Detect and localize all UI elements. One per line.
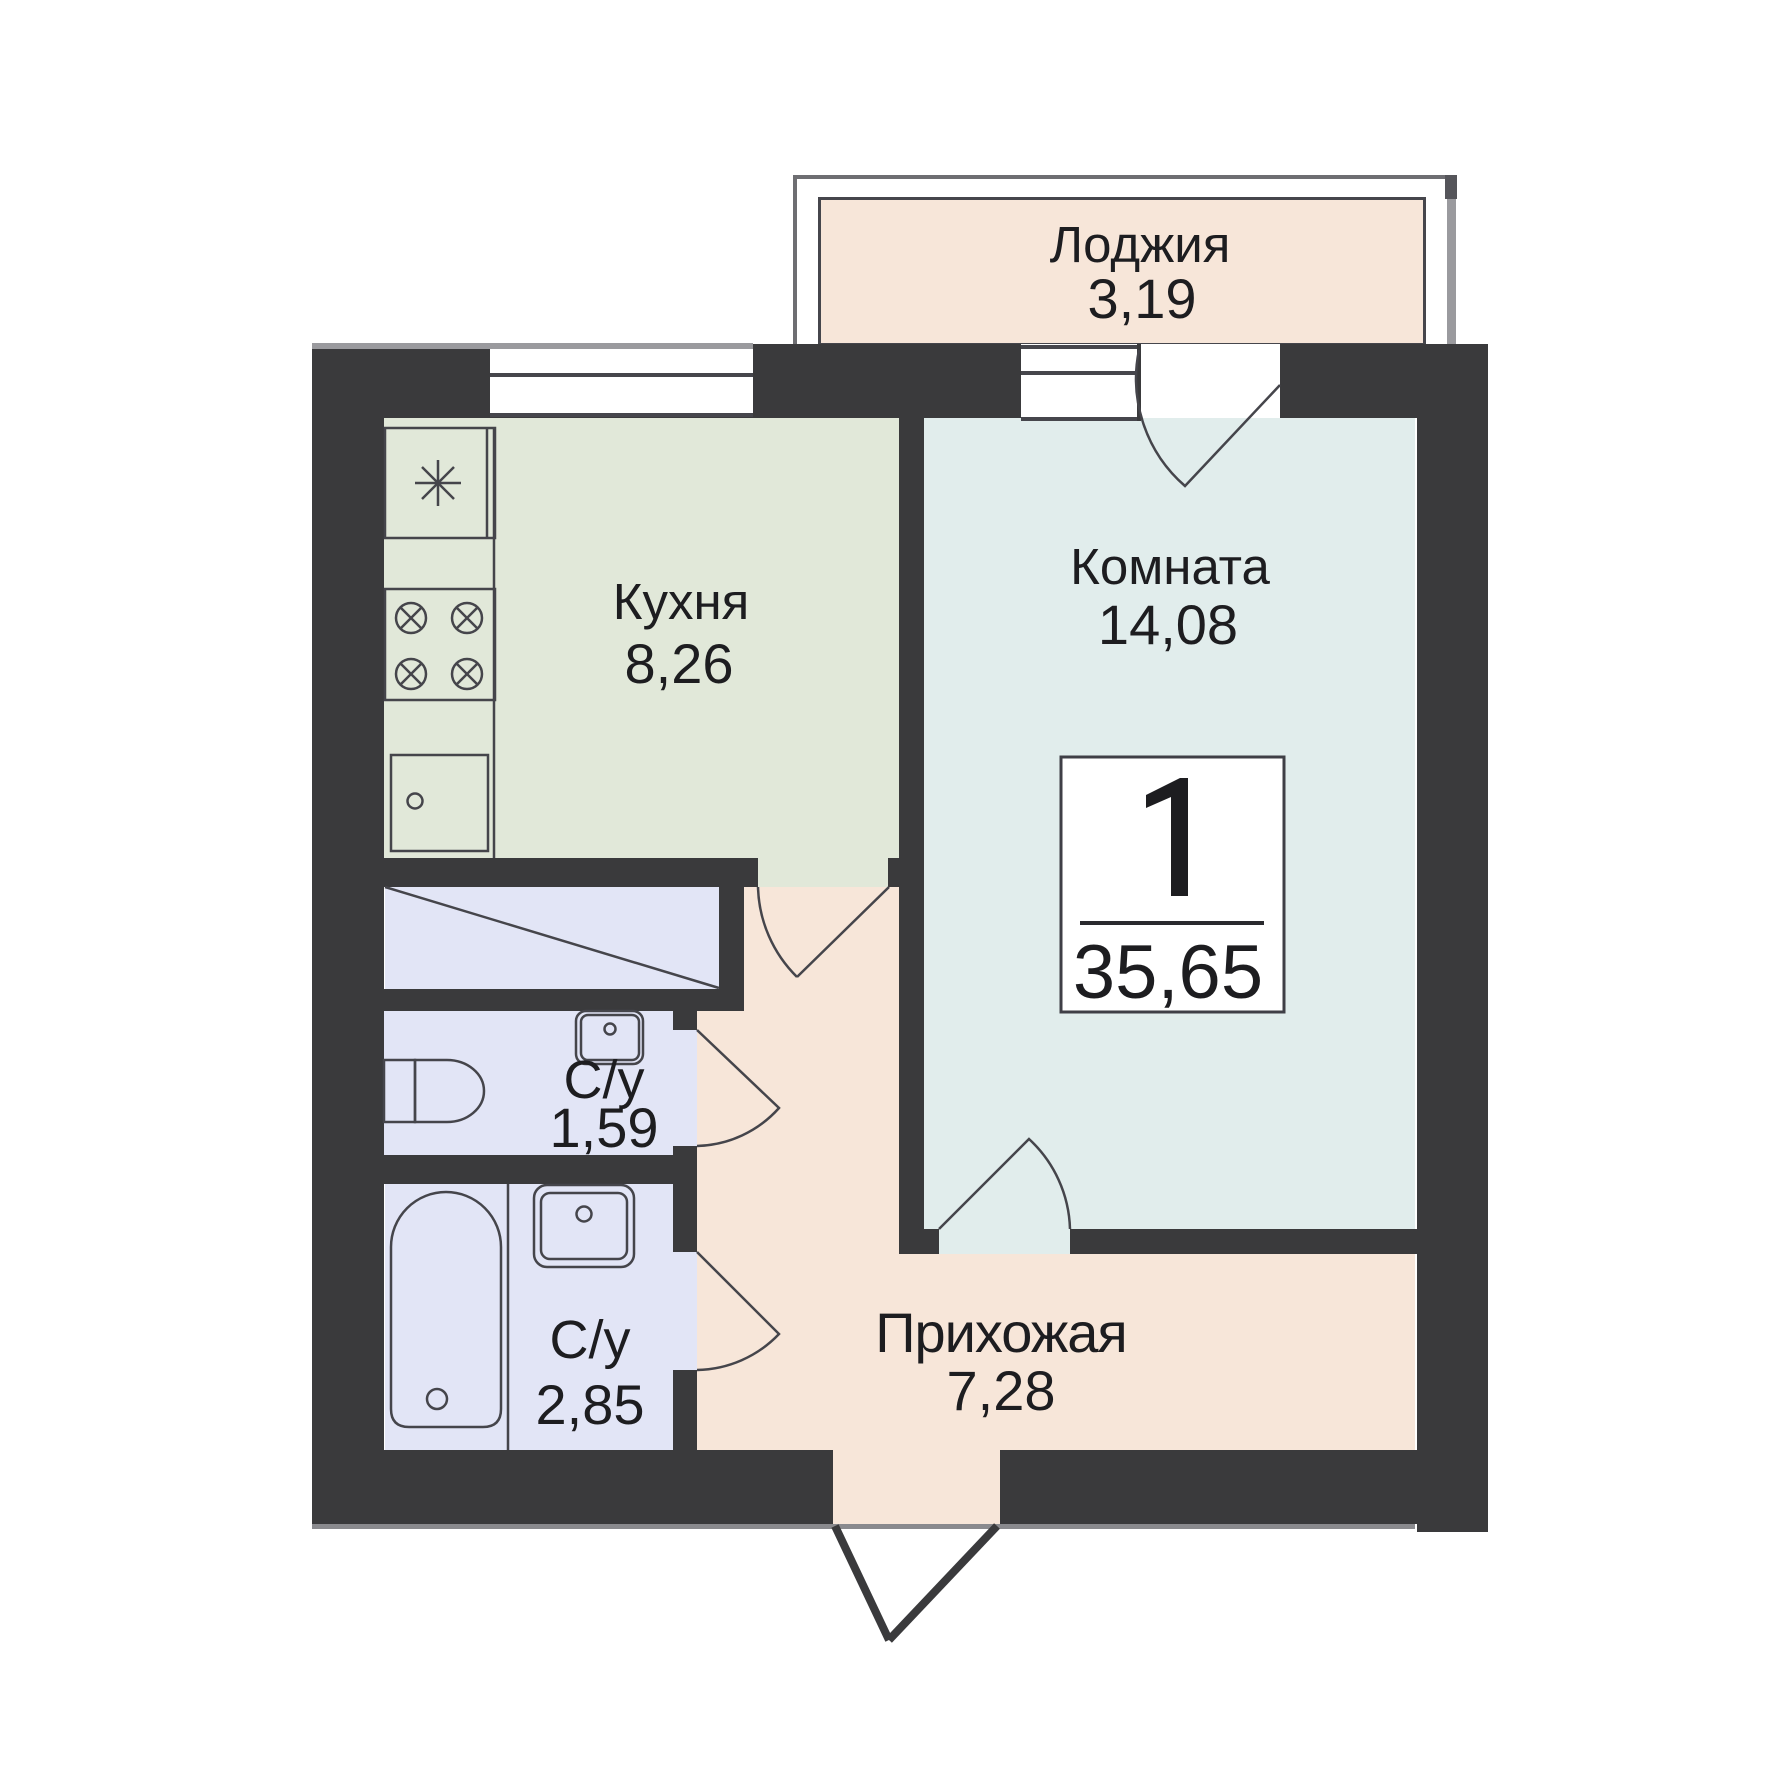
svg-text:3,19: 3,19: [1088, 267, 1197, 330]
svg-text:35,65: 35,65: [1073, 930, 1263, 1015]
svg-text:Комната: Комната: [1070, 538, 1270, 595]
svg-text:С/у: С/у: [550, 1310, 631, 1370]
svg-text:7,28: 7,28: [947, 1359, 1056, 1422]
svg-text:Лоджия: Лоджия: [1050, 216, 1231, 273]
svg-text:1,59: 1,59: [550, 1096, 659, 1159]
svg-text:Прихожая: Прихожая: [875, 1301, 1127, 1364]
svg-text:Кухня: Кухня: [613, 573, 750, 630]
svg-text:14,08: 14,08: [1098, 593, 1238, 656]
svg-text:2,85: 2,85: [536, 1373, 645, 1436]
svg-text:8,26: 8,26: [625, 632, 734, 695]
